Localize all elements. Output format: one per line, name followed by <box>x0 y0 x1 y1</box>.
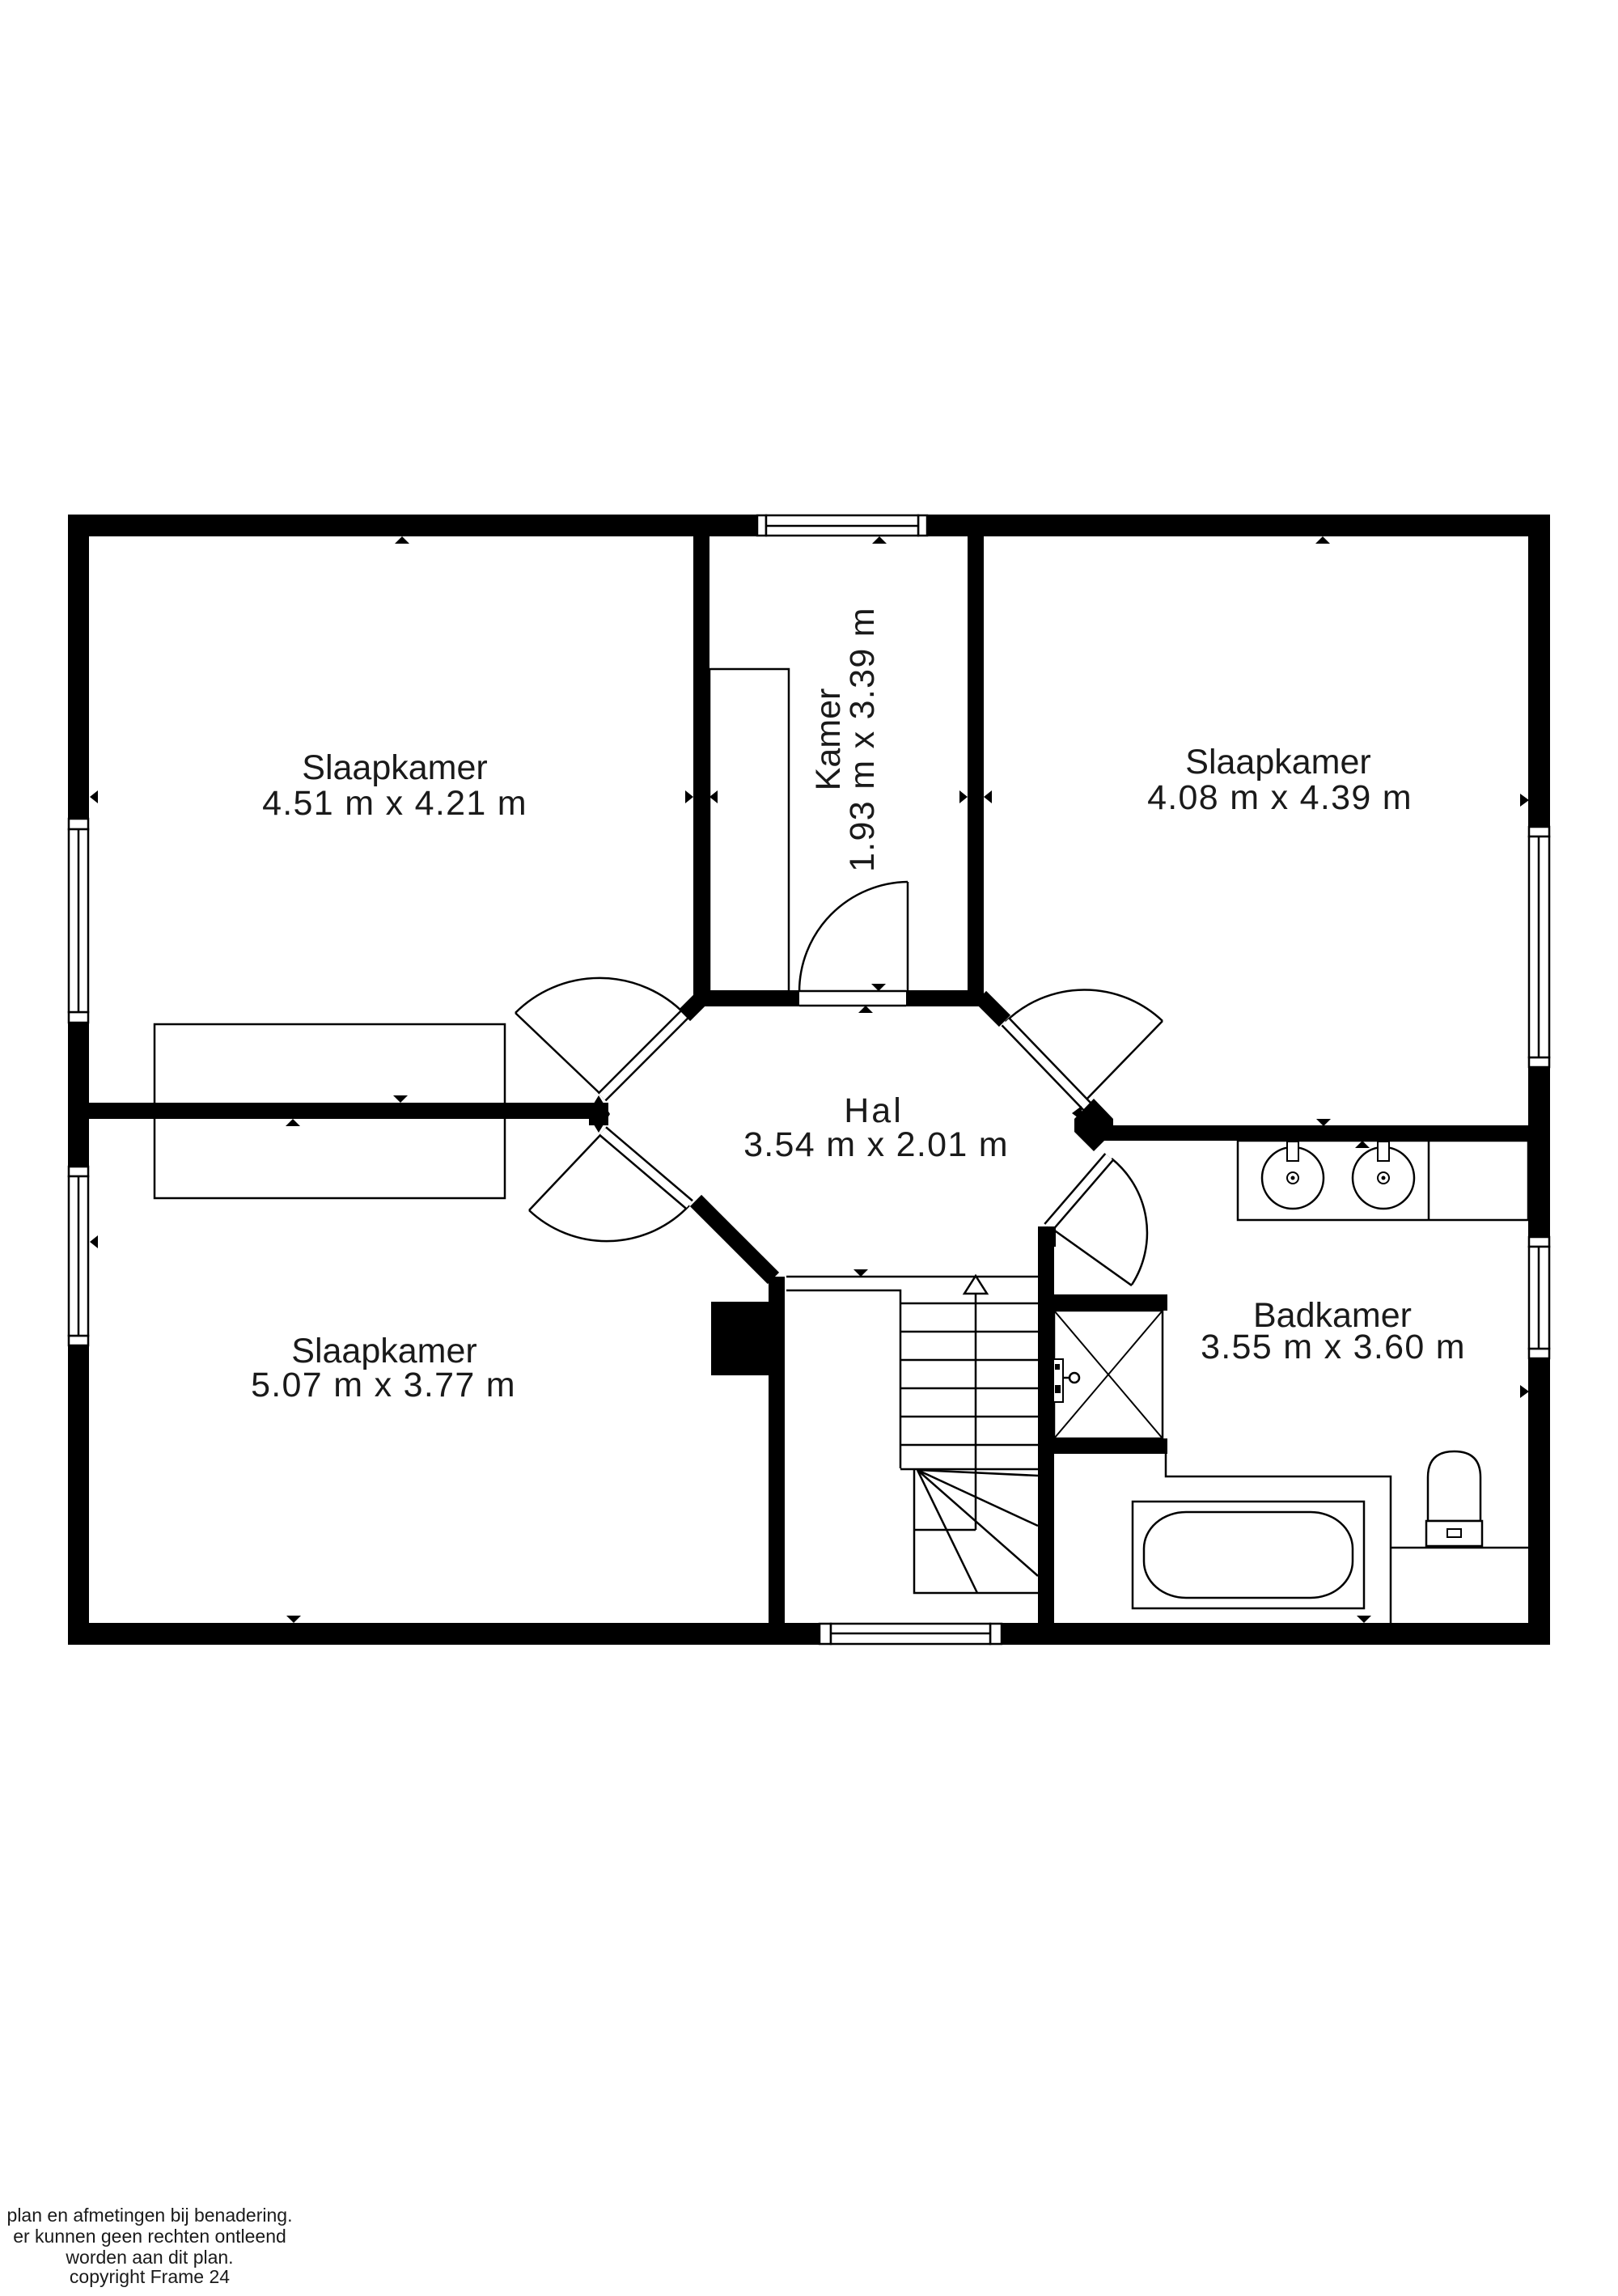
svg-text:worden aan dit plan.: worden aan dit plan. <box>65 2247 233 2268</box>
svg-text:plan en afmetingen bij benader: plan en afmetingen bij benadering. <box>7 2205 293 2226</box>
svg-text:Slaapkamer: Slaapkamer <box>302 748 487 787</box>
svg-text:5.07 m x 3.77 m: 5.07 m x 3.77 m <box>251 1366 516 1404</box>
svg-text:Hal: Hal <box>844 1091 904 1130</box>
svg-text:copyright Frame 24: copyright Frame 24 <box>70 2266 230 2287</box>
svg-text:1.93 m x 3.39 m: 1.93 m x 3.39 m <box>843 607 882 872</box>
svg-text:3.55 m x 3.60 m: 3.55 m x 3.60 m <box>1201 1328 1466 1366</box>
svg-text:Slaapkamer: Slaapkamer <box>291 1332 477 1370</box>
svg-text:3.54 m x 2.01 m: 3.54 m x 2.01 m <box>743 1125 1009 1164</box>
svg-text:Slaapkamer: Slaapkamer <box>1185 743 1370 782</box>
svg-text:er kunnen geen rechten ontleen: er kunnen geen rechten ontleend <box>13 2226 286 2247</box>
svg-text:4.08 m x 4.39 m: 4.08 m x 4.39 m <box>1147 778 1413 817</box>
svg-text:4.51 m x 4.21 m: 4.51 m x 4.21 m <box>262 784 527 823</box>
svg-text:Kamer: Kamer <box>809 688 848 791</box>
